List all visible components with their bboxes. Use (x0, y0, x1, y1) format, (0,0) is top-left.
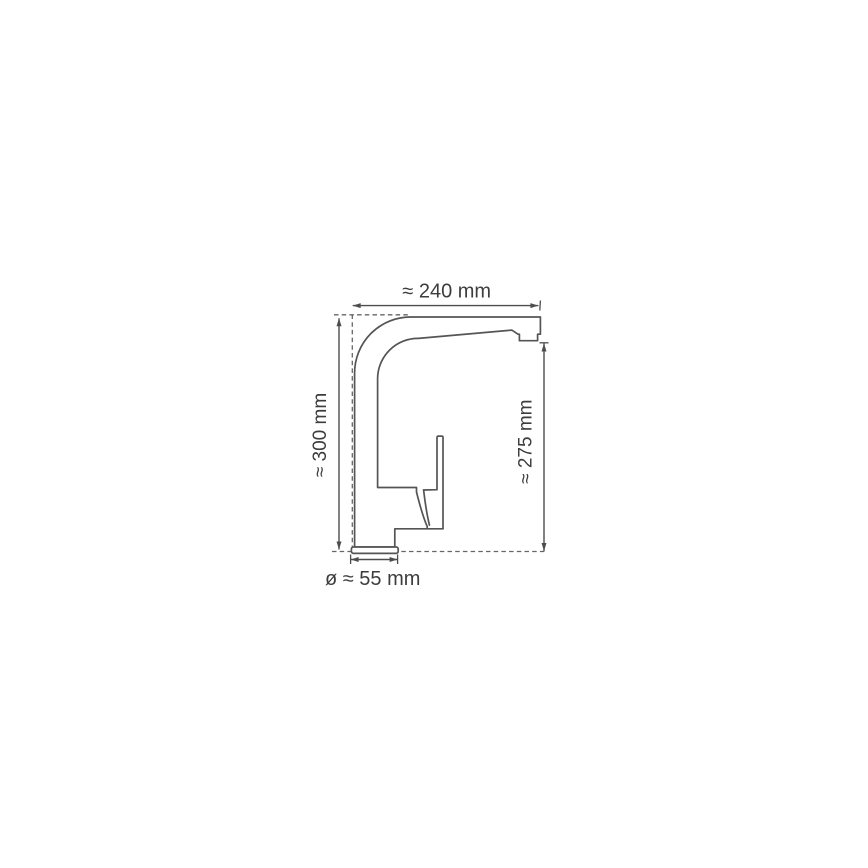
dimension-label-diameter: ø ≈ 55 mm (325, 568, 420, 590)
dimension-height-right: ≈ 275 mm (516, 343, 549, 551)
arrowhead-bottom (337, 542, 342, 550)
dashed-reference-lines (332, 315, 545, 554)
dimension-width-top: ≈ 240 mm (353, 281, 541, 311)
dimension-label-width: ≈ 240 mm (402, 281, 491, 303)
extension-tick-right (540, 301, 541, 311)
dimension-height-left: ≈ 300 mm (310, 318, 342, 549)
arrowhead-bottom (542, 543, 547, 551)
dimension-label-height-right: ≈ 275 mm (516, 400, 537, 484)
faucet-base-flange (351, 547, 398, 553)
dimension-label-height-left: ≈ 300 mm (310, 393, 331, 477)
faucet-base-neck-outline (355, 529, 443, 547)
arrowhead-top (337, 318, 342, 326)
faucet-body-spout-outline (355, 317, 541, 547)
dimension-diameter-bottom: ø ≈ 55 mm (325, 555, 420, 591)
arrowhead-left (353, 303, 361, 308)
product-dimension-image: ≈ 240 mm ≈ 300 mm ≈ 275 mm ø ≈ 55 mm (0, 0, 868, 868)
faucet-drawing (351, 317, 540, 553)
arrowhead-right (530, 303, 538, 308)
arrowhead-left (351, 557, 359, 562)
technical-drawing-canvas: ≈ 240 mm ≈ 300 mm ≈ 275 mm ø ≈ 55 mm (0, 0, 868, 868)
arrowhead-top (542, 344, 547, 352)
arrowhead-right (390, 557, 398, 562)
